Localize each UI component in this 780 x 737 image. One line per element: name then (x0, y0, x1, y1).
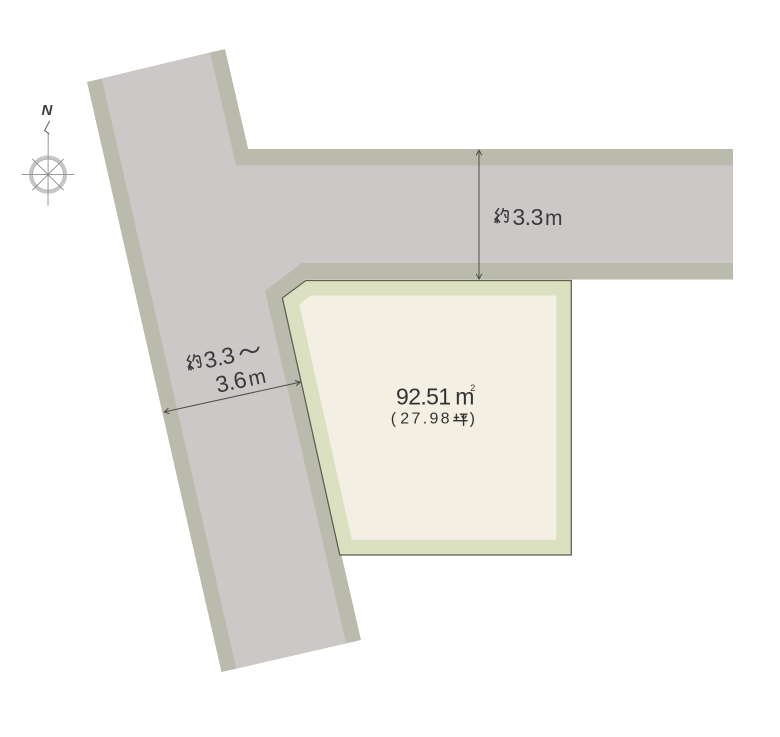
svg-text:3.3: 3.3 (512, 204, 542, 230)
svg-text:2: 2 (470, 383, 475, 393)
svg-text:(: ( (391, 411, 397, 428)
svg-text:m: m (545, 207, 563, 230)
svg-text:92.51: 92.51 (396, 384, 451, 410)
svg-text:): ) (470, 411, 475, 428)
svg-text:N: N (42, 102, 54, 119)
svg-text:27.98: 27.98 (400, 411, 452, 428)
